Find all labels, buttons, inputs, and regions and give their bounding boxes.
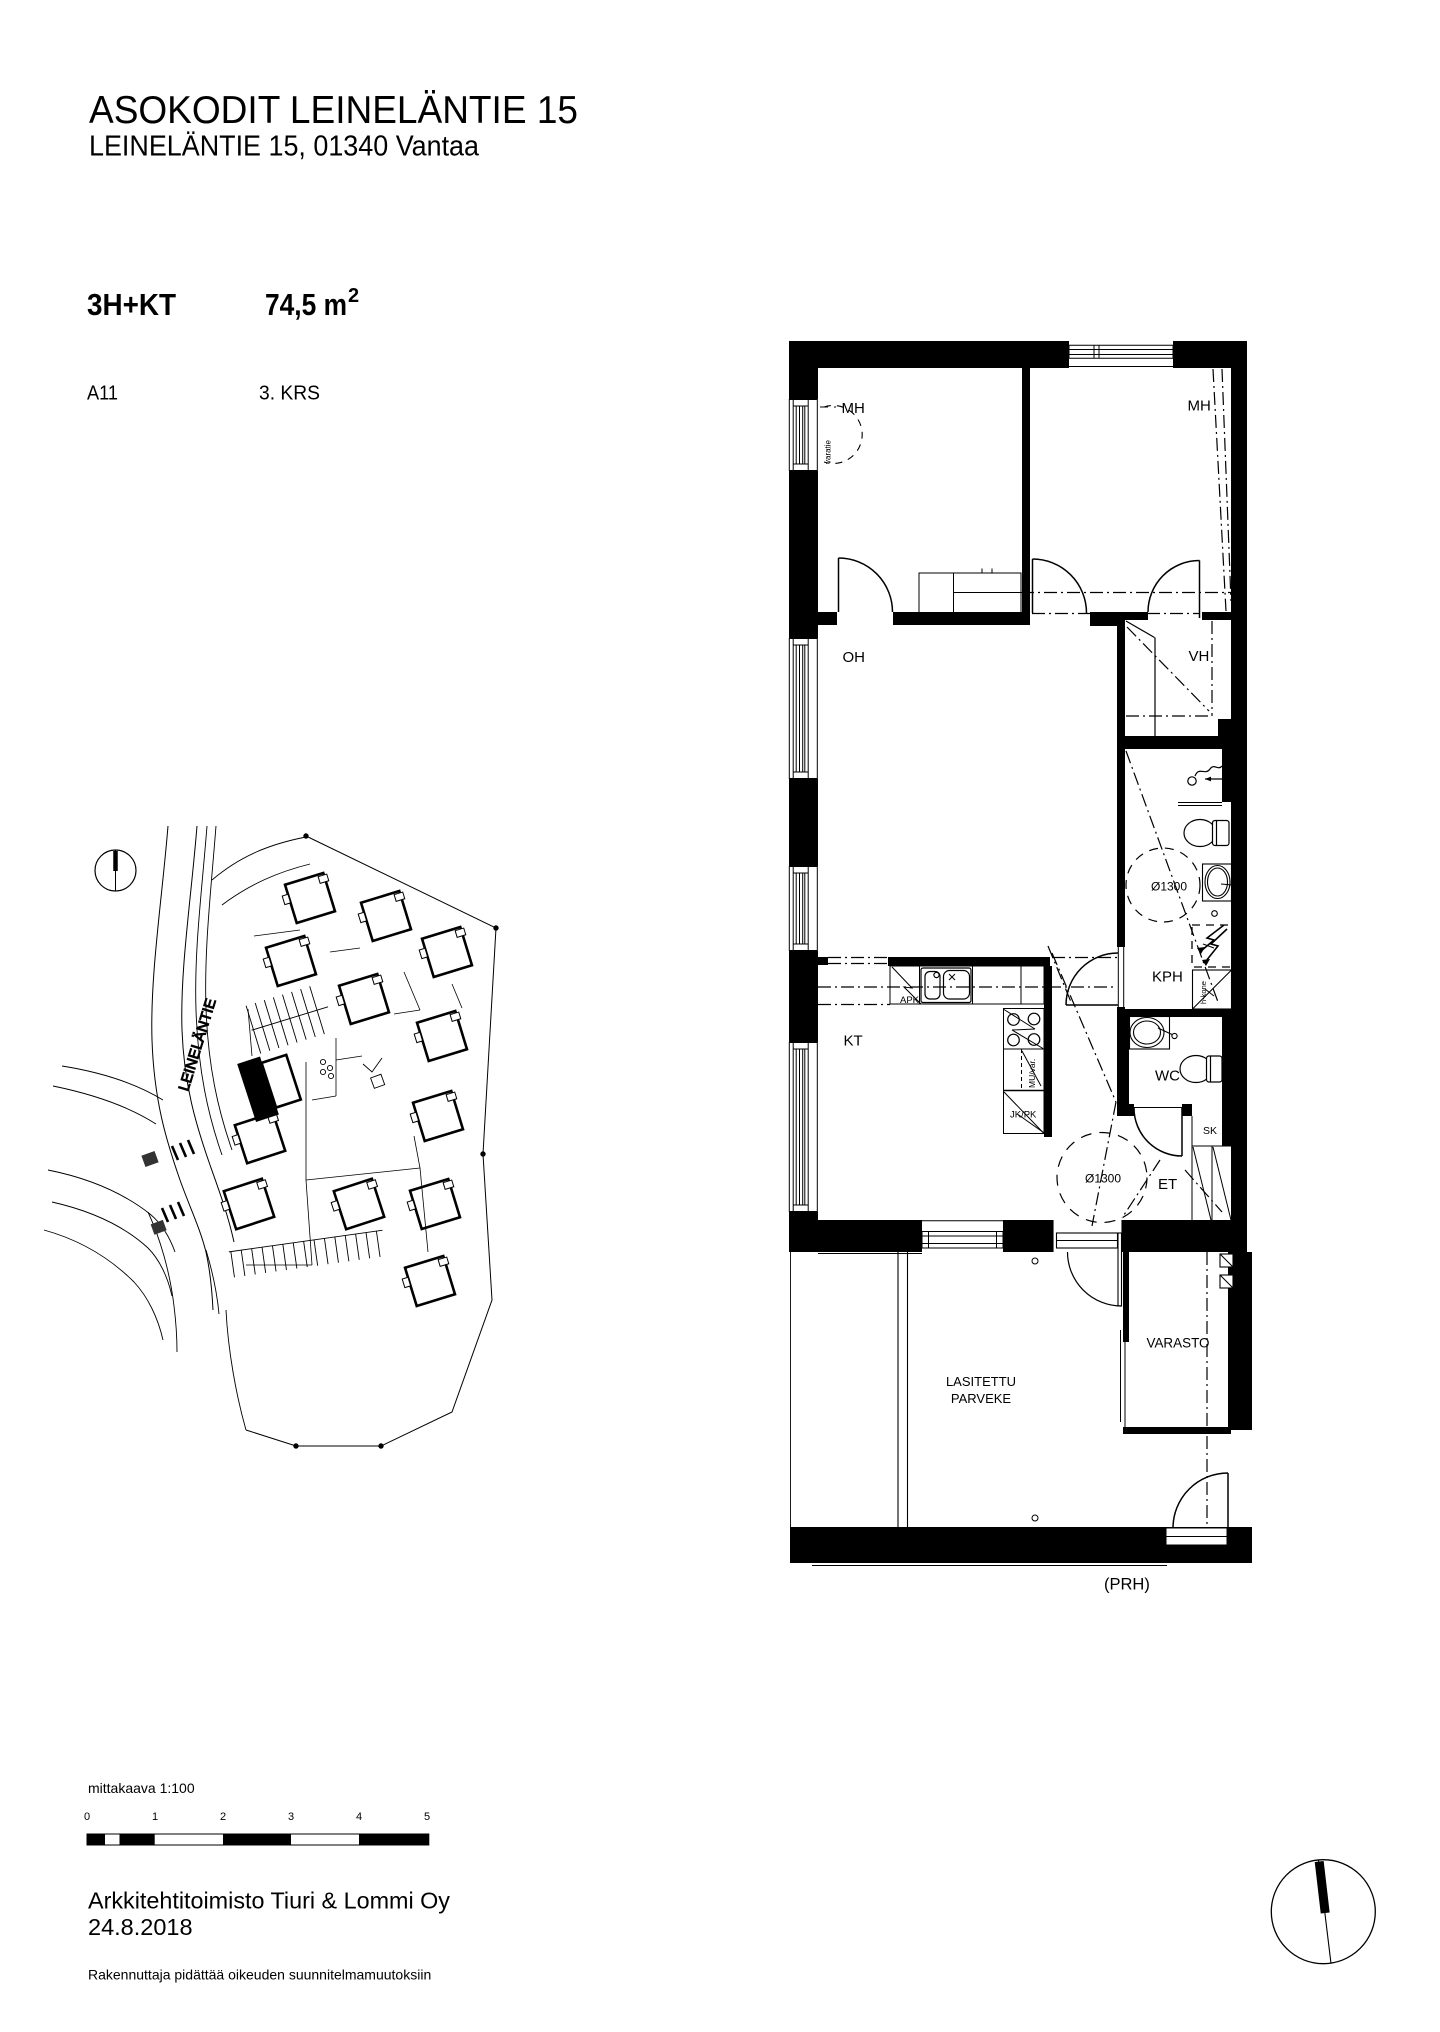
svg-text:Arkkitehtitoimisto Tiuri & Lom: Arkkitehtitoimisto Tiuri & Lommi Oy: [88, 1888, 450, 1914]
svg-text:Ø1300: Ø1300: [1151, 880, 1187, 894]
svg-text:4: 4: [356, 1811, 362, 1823]
svg-text:74,5 m: 74,5 m: [265, 287, 347, 322]
svg-text:2: 2: [220, 1811, 226, 1823]
svg-text:h-kone: h-kone: [1199, 981, 1208, 1004]
svg-text:5: 5: [424, 1811, 430, 1823]
svg-text:APK: APK: [900, 995, 920, 1006]
svg-text:LASITETTU: LASITETTU: [946, 1374, 1016, 1389]
svg-text:mittakaava 1:100: mittakaava 1:100: [88, 1780, 195, 1796]
svg-text:ASOKODIT LEINELÄNTIE 15: ASOKODIT LEINELÄNTIE 15: [89, 89, 578, 132]
svg-text:1: 1: [152, 1811, 158, 1823]
svg-text:VARASTO: VARASTO: [1147, 1335, 1210, 1351]
svg-text:LEINELÄNTIE 15, 01340 Vantaa: LEINELÄNTIE 15, 01340 Vantaa: [89, 131, 480, 163]
svg-text:VH: VH: [1189, 648, 1210, 665]
svg-text:2: 2: [348, 285, 359, 307]
svg-text:(PRH): (PRH): [1104, 1576, 1150, 1594]
svg-text:24.8.2018: 24.8.2018: [88, 1914, 193, 1940]
svg-text:PARVEKE: PARVEKE: [951, 1391, 1012, 1406]
svg-text:KPH: KPH: [1152, 969, 1183, 986]
svg-text:3. KRS: 3. KRS: [259, 383, 320, 405]
svg-text:WC: WC: [1155, 1068, 1180, 1085]
svg-text:varatie: varatie: [824, 439, 833, 464]
svg-text:MU/var.: MU/var.: [1027, 1059, 1037, 1088]
svg-text:KT: KT: [844, 1033, 863, 1050]
svg-text:Rakennuttaja pidättää oikeuden: Rakennuttaja pidättää oikeuden suunnitel…: [88, 1967, 431, 1983]
svg-text:3: 3: [288, 1811, 294, 1823]
svg-text:JK/PK: JK/PK: [1010, 1110, 1037, 1121]
svg-text:ET: ET: [1158, 1176, 1177, 1193]
svg-text:Ø1300: Ø1300: [1085, 1172, 1121, 1186]
svg-text:0: 0: [84, 1811, 90, 1823]
svg-text:SK: SK: [1203, 1125, 1217, 1137]
svg-text:3H+KT: 3H+KT: [87, 287, 176, 322]
svg-text:MH: MH: [842, 400, 865, 417]
svg-text:MH: MH: [1188, 398, 1211, 415]
svg-text:A11: A11: [87, 383, 118, 405]
svg-text:OH: OH: [843, 649, 866, 666]
